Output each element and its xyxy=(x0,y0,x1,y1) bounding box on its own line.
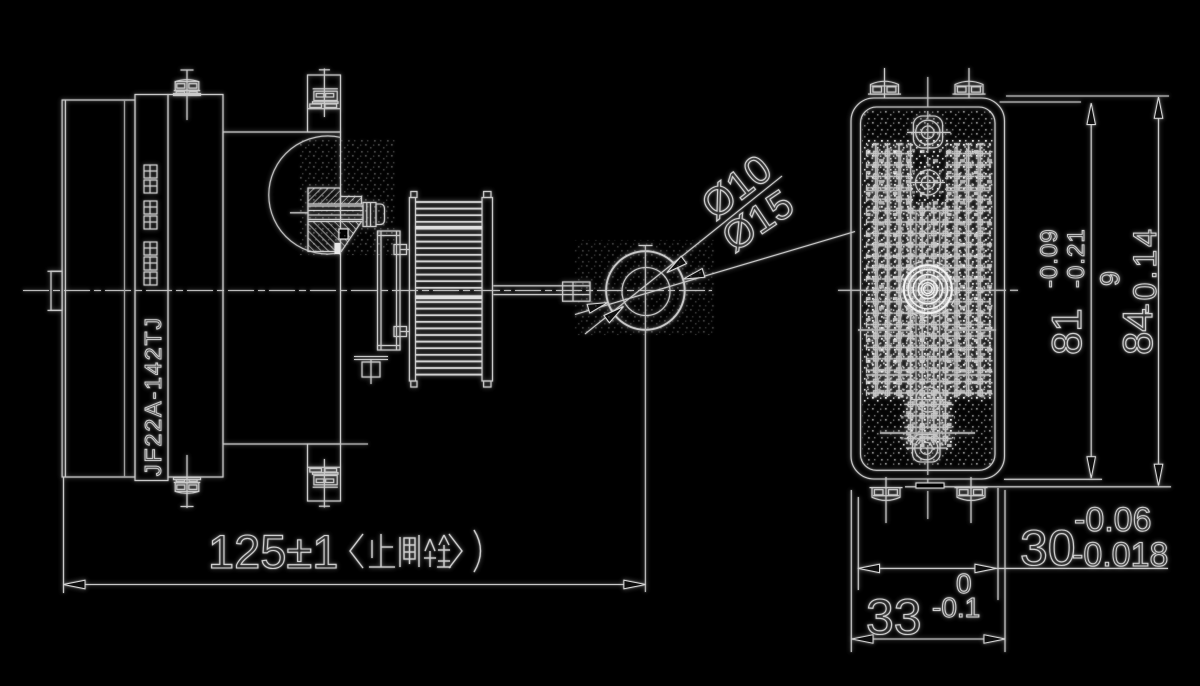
svg-text:-0.14: -0.14 xyxy=(1127,226,1163,314)
svg-text:-0.09: -0.09 xyxy=(1036,228,1063,288)
svg-text:81: 81 xyxy=(1043,308,1090,355)
svg-text:30: 30 xyxy=(1020,520,1076,576)
svg-text:33: 33 xyxy=(866,589,922,645)
svg-text:125±1: 125±1 xyxy=(208,525,338,578)
svg-text:-0.018: -0.018 xyxy=(1072,536,1168,574)
svg-text:-0.21: -0.21 xyxy=(1063,228,1090,288)
svg-text:-0.06: -0.06 xyxy=(1074,501,1152,539)
svg-text:84: 84 xyxy=(1114,308,1161,355)
svg-text:-0.1: -0.1 xyxy=(932,592,980,623)
svg-text:9: 9 xyxy=(1095,271,1125,286)
svg-text:JF22A-142TJ: JF22A-142TJ xyxy=(140,316,166,476)
